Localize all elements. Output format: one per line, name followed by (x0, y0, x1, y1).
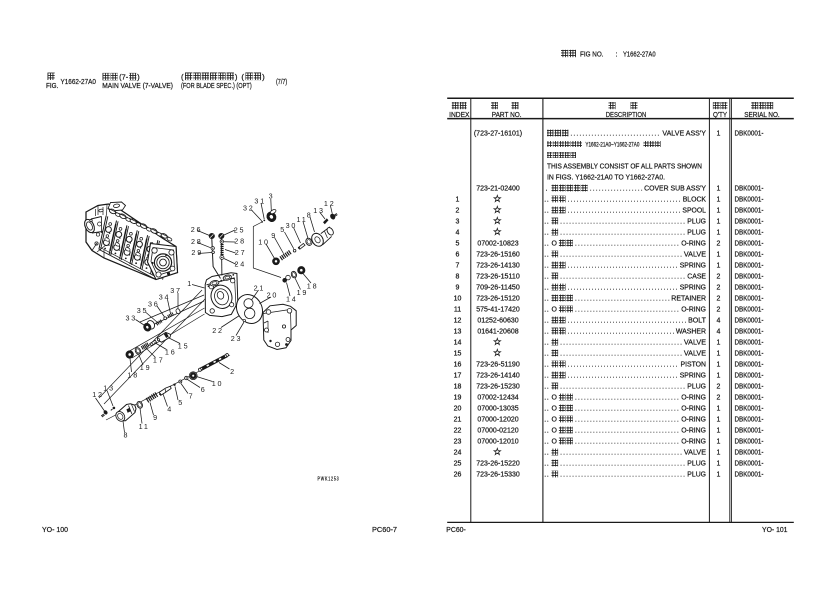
svg-text:1: 1 (717, 340, 721, 347)
svg-text:25: 25 (234, 226, 246, 235)
svg-text:25: 25 (454, 461, 462, 468)
svg-text:1: 1 (717, 417, 721, 424)
svg-text:723-26-15220: 723-26-15220 (476, 461, 520, 468)
svg-text:723-26-15120: 723-26-15120 (476, 296, 520, 303)
svg-text:DBK0001-: DBK0001- (735, 241, 765, 248)
svg-text:1: 1 (717, 406, 721, 413)
svg-text:DBK0001-: DBK0001- (735, 208, 765, 215)
svg-text:SPRING: SPRING (680, 263, 706, 270)
svg-text:PART NO.: PART NO. (492, 112, 522, 119)
svg-text:VALVE: VALVE (684, 340, 706, 347)
svg-text:DBK0001-: DBK0001- (735, 307, 765, 314)
svg-text:34: 34 (159, 293, 171, 302)
svg-text:1: 1 (717, 472, 721, 479)
svg-text:DBK0001-: DBK0001- (735, 296, 765, 303)
svg-text:DBK0001-: DBK0001- (735, 274, 765, 281)
svg-text:Q'TY: Q'TY (713, 112, 727, 119)
svg-text:RETAINER: RETAINER (671, 296, 706, 303)
svg-text:PC60-: PC60- (446, 527, 466, 534)
svg-text:O-RING: O-RING (681, 241, 706, 248)
svg-text:4: 4 (456, 230, 460, 237)
svg-text:1: 1 (717, 351, 721, 358)
svg-text:01252-60630: 01252-60630 (477, 318, 518, 325)
svg-text:O-RING: O-RING (681, 439, 706, 446)
svg-text:35: 35 (137, 306, 149, 315)
svg-text:26: 26 (191, 225, 203, 234)
svg-text:07000-02120: 07000-02120 (477, 428, 518, 435)
svg-text:15: 15 (454, 351, 462, 358)
svg-text:WASHER: WASHER (676, 329, 706, 336)
svg-text:BOLT: BOLT (688, 318, 707, 325)
svg-text:THIS ASSEMBLY CONSIST OF ALL P: THIS ASSEMBLY CONSIST OF ALL PARTS SHOWN (547, 164, 702, 171)
svg-text:21: 21 (254, 283, 266, 292)
svg-text:723-26-15110: 723-26-15110 (476, 274, 520, 281)
svg-text:O: O (552, 241, 558, 248)
svg-text:PLUG: PLUG (687, 230, 706, 237)
svg-text:SPRING: SPRING (680, 373, 706, 380)
svg-text:1: 1 (187, 279, 191, 288)
svg-text:9: 9 (271, 231, 275, 240)
svg-text:07002-12434: 07002-12434 (477, 395, 518, 402)
svg-text:20: 20 (454, 406, 462, 413)
svg-text:INDEX: INDEX (449, 112, 470, 119)
svg-text:2: 2 (717, 285, 721, 292)
svg-text:O-RING: O-RING (681, 428, 706, 435)
svg-text:31: 31 (254, 196, 266, 205)
svg-text:14: 14 (454, 340, 462, 347)
svg-text:Y1662-21A0~Y1662-27A0: Y1662-21A0~Y1662-27A0 (585, 141, 639, 148)
svg-text:MAIN VALVE (7-VALVE): MAIN VALVE (7-VALVE) (102, 83, 173, 90)
svg-text:1: 1 (717, 219, 721, 226)
svg-text:22: 22 (212, 326, 224, 335)
svg-text:26: 26 (454, 472, 462, 479)
svg-text:1: 1 (717, 186, 721, 193)
svg-text:O: O (552, 395, 558, 402)
svg-text:): ) (262, 75, 265, 82)
svg-text:13: 13 (103, 384, 115, 393)
svg-text:VALVE: VALVE (684, 450, 706, 457)
svg-text:16: 16 (165, 348, 177, 357)
svg-text:PC60-7: PC60-7 (372, 527, 397, 534)
svg-text:PLUG: PLUG (687, 384, 706, 391)
svg-text:): ) (235, 75, 238, 82)
svg-text:8: 8 (307, 210, 311, 219)
svg-text:O-RING: O-RING (681, 307, 706, 314)
svg-text:6: 6 (201, 385, 205, 394)
svg-text:YO- 101: YO- 101 (762, 527, 788, 534)
svg-text:1: 1 (717, 428, 721, 435)
svg-text:17: 17 (153, 356, 165, 365)
svg-text:1: 1 (717, 461, 721, 468)
svg-text:7: 7 (456, 263, 460, 270)
svg-text:07000-13035: 07000-13035 (477, 406, 518, 413)
svg-text:DBK0001-: DBK0001- (735, 472, 765, 479)
svg-text:10: 10 (258, 238, 270, 247)
svg-text:DBK0001-: DBK0001- (735, 252, 765, 259)
svg-text:DBK0001-: DBK0001- (735, 131, 765, 138)
svg-text:2: 2 (717, 241, 721, 248)
svg-text:28: 28 (234, 236, 246, 245)
svg-text:1: 1 (717, 439, 721, 446)
svg-text:723-26-15160: 723-26-15160 (476, 252, 520, 259)
svg-text:723-26-15230: 723-26-15230 (476, 384, 520, 391)
svg-text:36: 36 (148, 300, 160, 309)
svg-text:1: 1 (717, 450, 721, 457)
svg-text:01641-20608: 01641-20608 (477, 329, 518, 336)
svg-text:VALVE: VALVE (684, 351, 706, 358)
svg-text:1: 1 (717, 131, 721, 138)
svg-text:DBK0001-: DBK0001- (735, 263, 765, 270)
svg-text:1: 1 (717, 230, 721, 237)
svg-text:07002-10823: 07002-10823 (477, 241, 518, 248)
svg-text:1: 1 (717, 263, 721, 270)
svg-text:DBK0001-: DBK0001- (735, 395, 765, 402)
svg-text:CASE: CASE (687, 274, 706, 281)
svg-text:23: 23 (454, 439, 462, 446)
svg-text:17: 17 (454, 373, 462, 380)
svg-text:): ) (137, 75, 140, 82)
svg-text:723-26-51190: 723-26-51190 (476, 362, 520, 369)
svg-text:20: 20 (267, 291, 279, 300)
svg-text:3: 3 (456, 219, 460, 226)
svg-text:30: 30 (286, 221, 298, 230)
svg-text:DBK0001-: DBK0001- (735, 362, 765, 369)
svg-text:19: 19 (454, 395, 462, 402)
svg-text:24: 24 (454, 450, 462, 457)
svg-text:13: 13 (454, 329, 462, 336)
svg-text:9: 9 (456, 285, 460, 292)
svg-text:DBK0001-: DBK0001- (735, 428, 765, 435)
svg-text:33: 33 (125, 313, 137, 322)
svg-text:DBK0001-: DBK0001- (735, 318, 765, 325)
svg-text:21: 21 (454, 417, 462, 424)
svg-text:DBK0001-: DBK0001- (735, 384, 765, 391)
svg-text:DBK0001-: DBK0001- (735, 186, 765, 193)
svg-text:O: O (552, 406, 558, 413)
svg-text:32: 32 (243, 203, 255, 212)
svg-text:07000-12010: 07000-12010 (477, 439, 518, 446)
svg-text:723-26-14140: 723-26-14140 (476, 373, 520, 380)
svg-text:DBK0001-: DBK0001- (735, 417, 765, 424)
svg-text:SPRING: SPRING (680, 285, 706, 292)
svg-text:2: 2 (456, 208, 460, 215)
svg-text:2: 2 (717, 274, 721, 281)
svg-text:4: 4 (717, 329, 721, 336)
svg-text::: : (616, 52, 618, 59)
svg-text:O-RING: O-RING (681, 395, 706, 402)
svg-text:5: 5 (178, 398, 182, 407)
svg-text:18: 18 (307, 282, 319, 291)
svg-text:12: 12 (92, 390, 104, 399)
svg-text:DBK0001-: DBK0001- (735, 439, 765, 446)
svg-text:YO- 100: YO- 100 (42, 527, 68, 534)
svg-text:709-26-11450: 709-26-11450 (476, 285, 520, 292)
svg-text:2: 2 (717, 384, 721, 391)
svg-text:DBK0001-: DBK0001- (735, 351, 765, 358)
svg-text:DBK0001-: DBK0001- (735, 406, 765, 413)
svg-text:4: 4 (167, 404, 171, 413)
svg-text:11: 11 (454, 307, 461, 314)
svg-text:DBK0001-: DBK0001- (735, 230, 765, 237)
svg-text:SPOOL: SPOOL (682, 208, 706, 215)
svg-text:29: 29 (191, 248, 203, 257)
svg-text:2: 2 (717, 296, 721, 303)
svg-text:1: 1 (717, 208, 721, 215)
svg-text:5: 5 (456, 241, 460, 248)
svg-text:IN FIGS. Y1662-21A0 TO Y1662-2: IN FIGS. Y1662-21A0 TO Y1662-27A0. (547, 175, 665, 182)
svg-text:1: 1 (717, 362, 721, 369)
svg-text:FIG NO.: FIG NO. (580, 52, 604, 59)
svg-text:PISTON: PISTON (681, 362, 707, 369)
svg-text:O: O (552, 439, 558, 446)
svg-text:PWK1253: PWK1253 (318, 477, 340, 483)
svg-text:4: 4 (717, 318, 721, 325)
svg-text:5: 5 (280, 225, 284, 234)
svg-text:10: 10 (454, 296, 462, 303)
svg-text:2: 2 (717, 395, 721, 402)
svg-text:23: 23 (231, 334, 243, 343)
svg-text:O-RING: O-RING (681, 406, 706, 413)
svg-text:VALVE: VALVE (684, 252, 706, 259)
svg-text:(723-27-16101): (723-27-16101) (474, 131, 522, 138)
svg-text:2: 2 (717, 307, 721, 314)
svg-text:DBK0001-: DBK0001- (735, 373, 765, 380)
svg-text:DBK0001-: DBK0001- (735, 461, 765, 468)
svg-text:12: 12 (454, 318, 462, 325)
svg-text:723-21-02400: 723-21-02400 (476, 186, 520, 193)
svg-text:27: 27 (235, 248, 247, 257)
svg-text:O-RING: O-RING (681, 417, 706, 424)
svg-text:(7/7): (7/7) (276, 79, 287, 86)
svg-text:12: 12 (324, 199, 336, 208)
svg-text:3: 3 (269, 192, 273, 201)
svg-text:O: O (552, 428, 558, 435)
svg-text:8: 8 (124, 431, 128, 440)
svg-text:(FOR BLADE SPEC.) (OPT): (FOR BLADE SPEC.) (OPT) (181, 83, 252, 90)
svg-text:19: 19 (140, 363, 152, 372)
svg-text:18: 18 (127, 371, 139, 380)
svg-text:COVER SUB ASS'Y: COVER SUB ASS'Y (644, 186, 706, 193)
svg-text:24: 24 (234, 259, 246, 268)
svg-text:DBK0001-: DBK0001- (735, 197, 765, 204)
svg-text:Y1662-27A0: Y1662-27A0 (61, 79, 96, 86)
svg-text:723-26-14130: 723-26-14130 (476, 263, 520, 270)
svg-text:DBK0001-: DBK0001- (735, 329, 765, 336)
svg-text:28: 28 (191, 237, 203, 246)
svg-text:15: 15 (178, 341, 190, 350)
svg-text:16: 16 (454, 362, 462, 369)
svg-text:11: 11 (139, 422, 150, 431)
svg-text:DBK0001-: DBK0001- (735, 285, 765, 292)
svg-text:2: 2 (230, 367, 234, 376)
svg-text:PLUG: PLUG (687, 219, 706, 226)
svg-text:1: 1 (717, 252, 721, 259)
svg-text:7: 7 (189, 391, 193, 400)
svg-text:10: 10 (212, 379, 224, 388)
svg-text:DESCRIPTION: DESCRIPTION (606, 112, 647, 119)
svg-text:575-41-17420: 575-41-17420 (476, 307, 520, 314)
svg-text:O: O (552, 307, 558, 314)
svg-text:37: 37 (170, 286, 182, 295)
svg-text:1: 1 (717, 373, 721, 380)
svg-text:22: 22 (454, 428, 462, 435)
svg-text:O: O (552, 417, 558, 424)
svg-text:(7-: (7- (119, 75, 129, 82)
svg-text:BLOCK: BLOCK (683, 197, 707, 204)
svg-text:1: 1 (456, 197, 460, 204)
svg-text:DBK0001-: DBK0001- (735, 340, 765, 347)
svg-text:DBK0001-: DBK0001- (735, 219, 765, 226)
svg-text:18: 18 (454, 384, 462, 391)
svg-text:VALVE ASS'Y: VALVE ASS'Y (662, 131, 706, 138)
svg-text:8: 8 (456, 274, 460, 281)
svg-text:Y1662-27A0: Y1662-27A0 (623, 52, 656, 59)
svg-text:PLUG: PLUG (687, 461, 706, 468)
svg-text:1: 1 (717, 197, 721, 204)
svg-text:SERIAL NO.: SERIAL NO. (744, 112, 779, 119)
svg-text:PLUG: PLUG (687, 472, 706, 479)
svg-text:07000-12020: 07000-12020 (477, 417, 518, 424)
svg-text:6: 6 (456, 252, 460, 259)
svg-text:9: 9 (153, 413, 157, 422)
svg-text:DBK0001-: DBK0001- (735, 450, 765, 457)
svg-text:FIG.: FIG. (46, 83, 58, 90)
svg-text:723-26-15330: 723-26-15330 (476, 472, 520, 479)
